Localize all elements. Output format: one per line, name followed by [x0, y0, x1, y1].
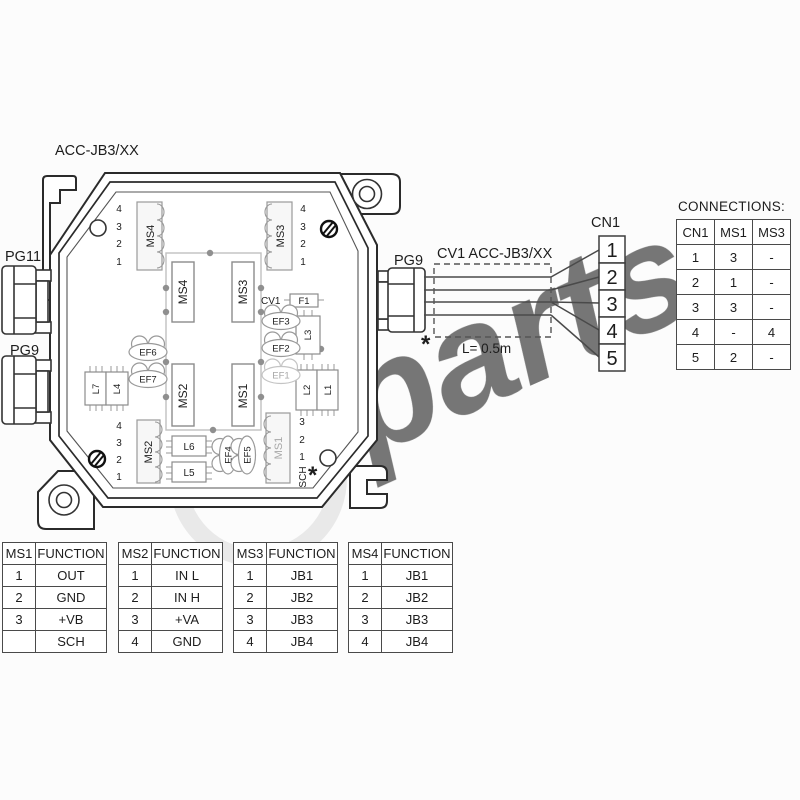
- table-row: 1OUT: [3, 565, 107, 587]
- svg-text:2: 2: [606, 267, 617, 289]
- svg-text:MS1: MS1: [236, 383, 250, 408]
- table-row: 1IN L: [119, 565, 223, 587]
- inductor-l3: L3: [296, 310, 320, 360]
- svg-text:3: 3: [300, 222, 306, 233]
- svg-text:4: 4: [606, 321, 617, 343]
- table-row: 1 3 -: [677, 245, 791, 270]
- pg11-gland: [2, 266, 51, 334]
- pg11-label: PG11: [5, 249, 41, 265]
- svg-text:MS2: MS2: [143, 441, 155, 464]
- svg-text:F1: F1: [298, 296, 309, 307]
- cover-screw-top-right: [321, 221, 337, 237]
- table-row: 4GND: [119, 631, 223, 653]
- svg-text:L6: L6: [183, 442, 195, 453]
- ms1-function-table: MS1 FUNCTION 1OUT 2GND 3+VB SCH: [2, 542, 107, 653]
- ms3-function-panel: MS3 FUNCTION 1JB1 2JB2 3JB3 4JB4: [233, 542, 338, 653]
- ms4-function-panel: MS4 FUNCTION 1JB1 2JB2 3JB3 4JB4: [348, 542, 453, 653]
- ear-hole-inner-bottom-left: [57, 493, 72, 508]
- svg-text:EF3: EF3: [272, 317, 289, 328]
- inductor-l7-l4: L7 L4: [85, 366, 128, 411]
- cable-length-label: L= 0.5m: [462, 341, 511, 356]
- svg-text:1: 1: [606, 240, 617, 262]
- svg-text:EF7: EF7: [139, 375, 156, 386]
- svg-text:EF5: EF5: [243, 446, 254, 463]
- svg-text:5: 5: [606, 348, 617, 370]
- ms3-function-table: MS3 FUNCTION 1JB1 2JB2 3JB3 4JB4: [233, 542, 338, 653]
- table-row: 5 2 -: [677, 345, 791, 370]
- table-row: 4JB4: [234, 631, 338, 653]
- svg-text:4: 4: [300, 204, 306, 215]
- device-title: ACC-JB3/XX: [55, 143, 139, 159]
- svg-text:MS3: MS3: [236, 279, 250, 304]
- svg-text:1: 1: [116, 257, 122, 268]
- relay-ms3: MS3: [232, 262, 254, 322]
- svg-text:L7: L7: [91, 384, 102, 395]
- inductor-l6: L6: [166, 436, 212, 456]
- svg-text:3: 3: [116, 222, 122, 233]
- svg-text:L5: L5: [183, 468, 195, 479]
- table-row: 2 1 -: [677, 270, 791, 295]
- schematic-page: parts: [0, 0, 800, 800]
- ms4-function-table: MS4 FUNCTION 1JB1 2JB2 3JB3 4JB4: [348, 542, 453, 653]
- svg-text:EF2: EF2: [272, 344, 289, 355]
- svg-text:EF6: EF6: [139, 348, 156, 359]
- svg-text:3: 3: [606, 294, 617, 316]
- relay-ms4: MS4: [172, 262, 194, 322]
- svg-text:L1: L1: [323, 385, 334, 396]
- table-row: 2JB2: [349, 587, 453, 609]
- ms2-function-panel: MS2 FUNCTION 1IN L 2IN H 3+VA 4GND: [118, 542, 223, 653]
- table-row: 3JB3: [349, 609, 453, 631]
- table-header-row: CN1 MS1 MS3: [677, 220, 791, 245]
- table-header-row: MS3 FUNCTION: [234, 543, 338, 565]
- table-row: 2GND: [3, 587, 107, 609]
- svg-text:4: 4: [116, 204, 122, 215]
- svg-text:2: 2: [299, 435, 305, 446]
- pg9-right-label: PG9: [394, 253, 423, 269]
- svg-text:2: 2: [300, 239, 306, 250]
- relay-ms2: MS2: [172, 364, 194, 426]
- svg-text:EF1: EF1: [272, 371, 289, 382]
- pg9-left-label: PG9: [10, 343, 39, 359]
- inductor-l2-l1: L2 L1: [296, 364, 338, 416]
- table-header-row: MS1 FUNCTION: [3, 543, 107, 565]
- svg-text:L2: L2: [302, 385, 313, 396]
- svg-text:MS4: MS4: [176, 279, 190, 304]
- table-row: 1JB1: [234, 565, 338, 587]
- cable-label: CV1 ACC-JB3/XX: [437, 246, 553, 262]
- cover-screw-bottom-left: [89, 451, 105, 467]
- table-row: 3 3 -: [677, 295, 791, 320]
- svg-text:L3: L3: [303, 330, 314, 341]
- cover-hole-top-left: [90, 220, 106, 236]
- svg-text:3: 3: [116, 438, 122, 449]
- terminal-block-ms4: MS4: [137, 202, 164, 270]
- connections-table: CN1 MS1 MS3 1 3 - 2 1 - 3 3 - 4 - 4 5 2 …: [676, 219, 791, 370]
- relay-ms1: MS1: [232, 364, 254, 426]
- table-row: 2IN H: [119, 587, 223, 609]
- table-row: 4 - 4: [677, 320, 791, 345]
- table-header-row: MS4 FUNCTION: [349, 543, 453, 565]
- ms2-function-table: MS2 FUNCTION 1IN L 2IN H 3+VA 4GND: [118, 542, 223, 653]
- svg-text:1: 1: [116, 472, 122, 483]
- pg9-gland-right: [378, 268, 425, 332]
- svg-text:1: 1: [299, 452, 305, 463]
- table-row: 4JB4: [349, 631, 453, 653]
- terminal-block-ms3: MS3: [265, 202, 292, 270]
- svg-text:MS1: MS1: [273, 437, 285, 460]
- inductor-l5: L5: [166, 462, 212, 482]
- svg-text:3: 3: [299, 417, 305, 428]
- table-row: 3+VA: [119, 609, 223, 631]
- svg-text:2: 2: [116, 455, 122, 466]
- table-row: 1JB1: [349, 565, 453, 587]
- asterisk-box: *: [308, 462, 318, 489]
- table-row: 2JB2: [234, 587, 338, 609]
- connections-title: CONNECTIONS:: [678, 199, 791, 214]
- svg-text:MS2: MS2: [176, 383, 190, 408]
- terminal-block-ms2: MS2: [137, 420, 162, 483]
- cn1-label: CN1: [591, 215, 620, 231]
- svg-text:MS4: MS4: [145, 225, 157, 248]
- svg-text:2: 2: [116, 239, 122, 250]
- asterisk-cable: *: [421, 331, 431, 358]
- connections-panel: CONNECTIONS: CN1 MS1 MS3 1 3 - 2 1 - 3 3…: [676, 199, 791, 370]
- svg-text:MS3: MS3: [275, 225, 287, 248]
- table-header-row: MS2 FUNCTION: [119, 543, 223, 565]
- svg-text:1: 1: [300, 257, 306, 268]
- pg9-gland-left: [2, 356, 51, 424]
- cover-hole-bottom-right: [320, 450, 336, 466]
- table-row: SCH: [3, 631, 107, 653]
- table-row: 3JB3: [234, 609, 338, 631]
- svg-text:L4: L4: [112, 384, 123, 395]
- ms1-function-panel: MS1 FUNCTION 1OUT 2GND 3+VB SCH: [2, 542, 107, 653]
- terminal-block-ms1: MS1: [264, 413, 290, 483]
- junction-box-diagram: parts: [0, 0, 800, 800]
- table-row: 3+VB: [3, 609, 107, 631]
- ear-hole-inner-top-right: [360, 187, 375, 202]
- svg-text:4: 4: [116, 421, 122, 432]
